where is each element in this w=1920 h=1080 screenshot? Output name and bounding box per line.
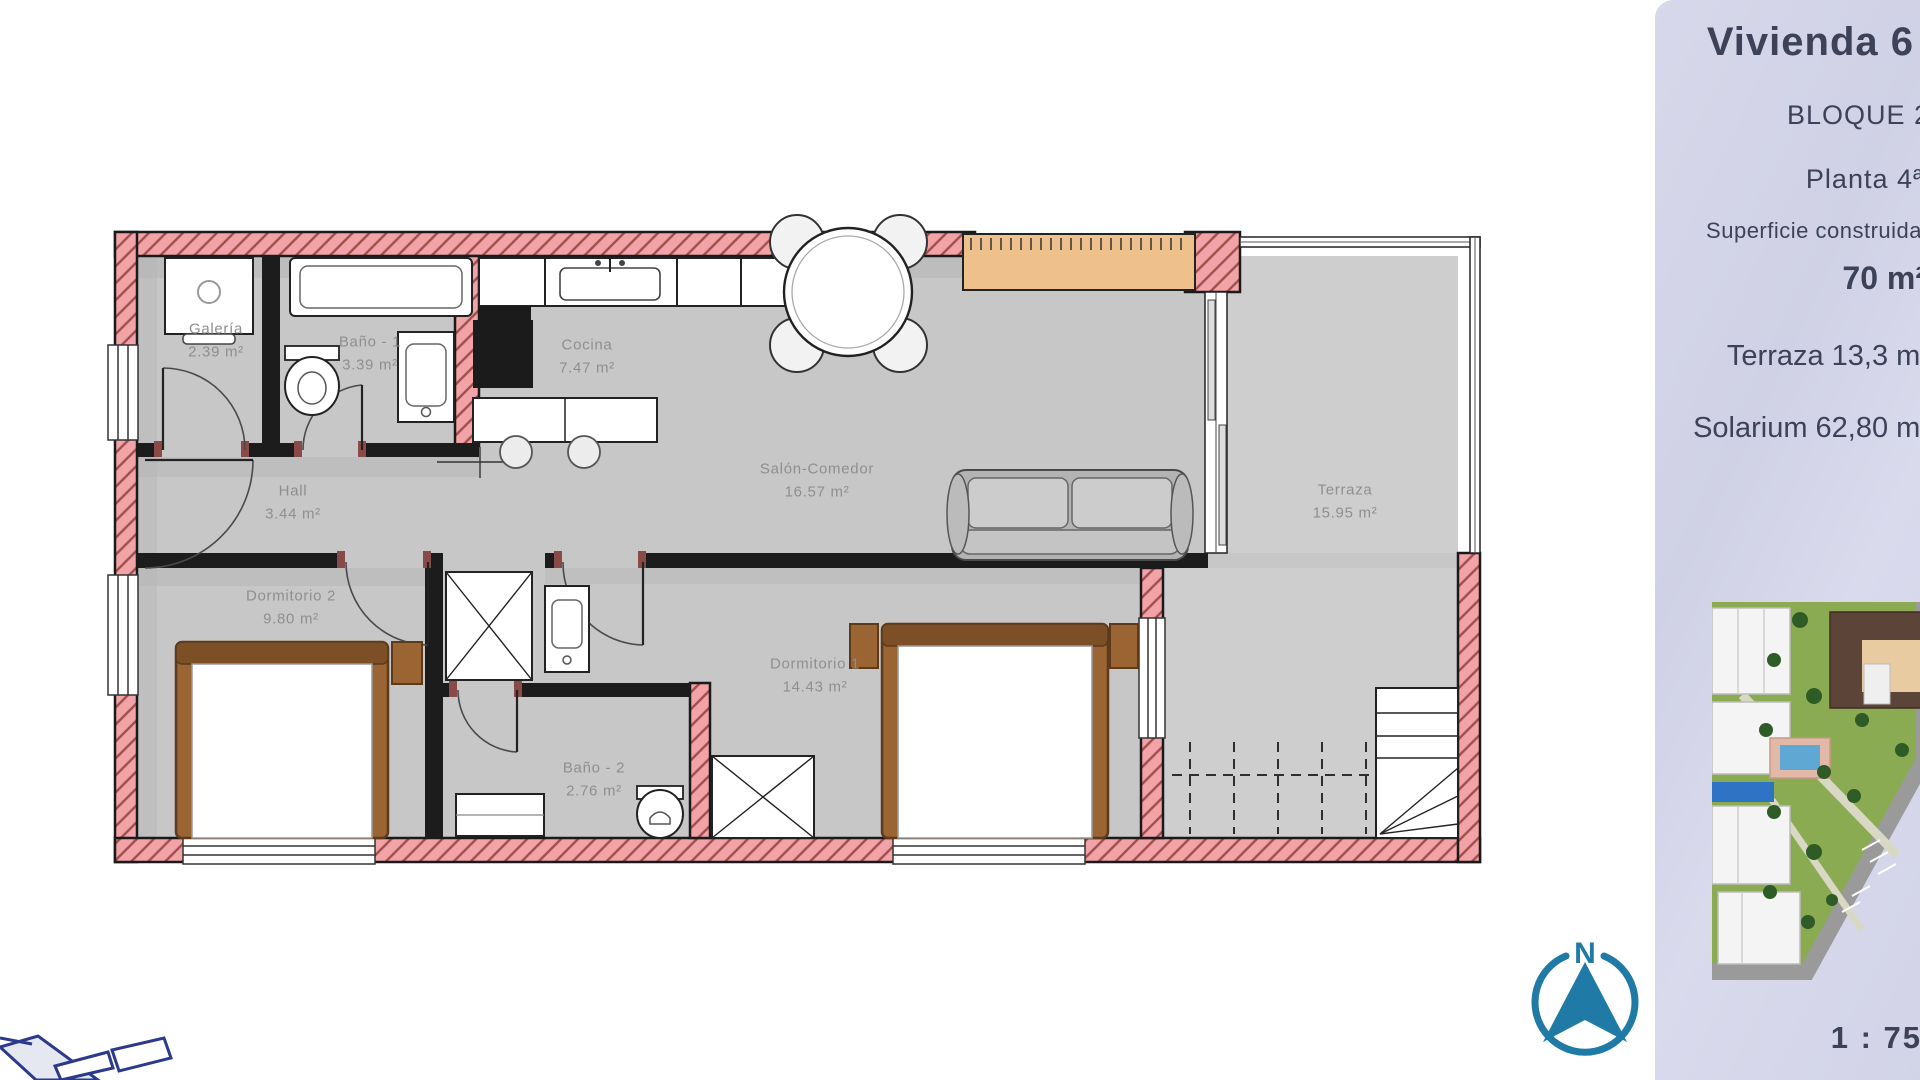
closet-1 — [712, 756, 814, 838]
room-label-galeria: Galería2.39 m² — [188, 319, 244, 364]
dining-table — [770, 215, 927, 372]
terrace-area-value: Terraza 13,3 m² — [1727, 340, 1920, 373]
floor-plan-drawing: N — [0, 0, 1920, 1080]
unit-info-sidebar: Vivienda 6 BLOQUE 2 Planta 4ª Superficie… — [1655, 0, 1920, 1080]
unit-title: Vivienda 6 — [1707, 20, 1914, 65]
room-label-bano1: Baño - 13.39 m² — [339, 332, 401, 377]
site-plan-thumbnail — [1712, 600, 1920, 1002]
blueprint-fragment — [0, 1036, 171, 1080]
stool — [500, 436, 532, 468]
room-label-terraza: Terraza15.95 m² — [1313, 480, 1378, 525]
compass-n-label: N — [1574, 937, 1596, 970]
room-label-salon: Salón-Comedor16.57 m² — [760, 459, 874, 504]
bed-2 — [176, 642, 422, 838]
bed-1 — [850, 624, 1138, 838]
room-label-dormitorio1: Dormitorio 114.43 m² — [770, 654, 860, 699]
unit-floor: Planta 4ª — [1806, 164, 1920, 195]
unit-location-marker — [1712, 782, 1774, 802]
room-label-dormitorio2: Dormitorio 29.80 m² — [246, 586, 336, 631]
north-compass: N — [1535, 937, 1635, 1052]
wall-bath2-bedroom1 — [690, 683, 710, 838]
stairs — [1376, 688, 1458, 838]
wall-right — [1458, 553, 1480, 862]
wardrobe — [446, 572, 532, 680]
kitchen-column — [473, 320, 533, 388]
room-label-hall: Hall3.44 m² — [265, 481, 321, 526]
site-brown-building — [1830, 612, 1920, 708]
room-label-bano2: Baño - 22.76 m² — [563, 758, 625, 803]
washbasin-2 — [545, 586, 589, 672]
north-arrow-icon — [1543, 962, 1627, 1042]
built-area-value: 70 m² — [1842, 260, 1920, 297]
built-area-label: Superficie construida — [1706, 218, 1920, 244]
stool — [568, 436, 600, 468]
terrace-canopy — [963, 234, 1195, 290]
drawing-scale: 1 : 75 — [1831, 1020, 1920, 1056]
sofa — [947, 470, 1193, 560]
solarium-area-value: Solarium 62,80 m² — [1693, 412, 1920, 445]
wall-left — [115, 232, 137, 862]
unit-block: BLOQUE 2 — [1787, 100, 1920, 131]
floor-plan-page: N Galería2.39 m² Baño - 13.39 m² Cocina7… — [0, 0, 1920, 1080]
room-label-cocina: Cocina7.47 m² — [559, 335, 615, 380]
